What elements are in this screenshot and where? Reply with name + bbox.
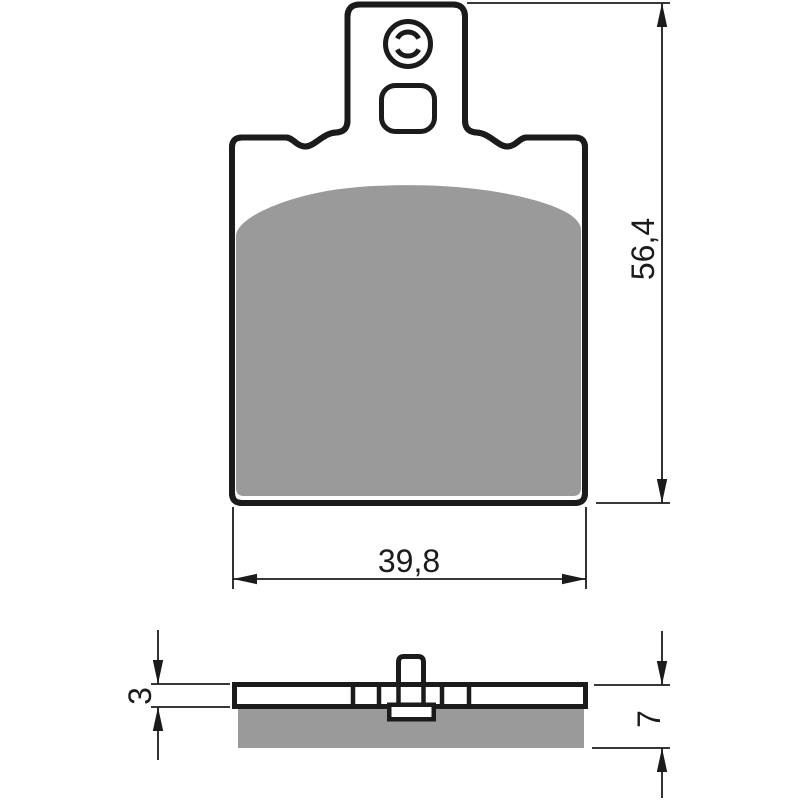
total-arrow-upper: [657, 661, 667, 685]
plate-thickness-dimension: 3: [122, 630, 230, 760]
plate-arrow-lower: [153, 707, 163, 731]
height-dimension-label: 56,4: [625, 218, 661, 280]
technical-drawing-canvas: 56,4 39,8 3: [0, 0, 800, 800]
mounting-hole-square: [382, 86, 435, 132]
total-thickness-dimension: 7: [592, 631, 670, 798]
plate-thickness-label: 3: [122, 687, 158, 705]
front-view: [232, 5, 585, 504]
friction-material-front: [236, 185, 581, 496]
tab-side: [399, 657, 424, 687]
plate-arrow-upper: [153, 660, 163, 684]
width-arrow-right: [562, 574, 586, 584]
width-dimension: 39,8: [233, 507, 586, 589]
brake-pad-drawing: 56,4 39,8 3: [0, 0, 800, 800]
notch-recess: [389, 705, 434, 720]
width-dimension-label: 39,8: [378, 543, 440, 579]
total-arrow-lower: [657, 748, 667, 772]
height-arrow-bottom: [657, 479, 667, 503]
height-arrow-top: [657, 3, 667, 27]
total-thickness-label: 7: [631, 710, 667, 728]
side-view: [235, 657, 586, 749]
pin-hole-circle: [386, 22, 431, 67]
width-arrow-left: [233, 574, 257, 584]
